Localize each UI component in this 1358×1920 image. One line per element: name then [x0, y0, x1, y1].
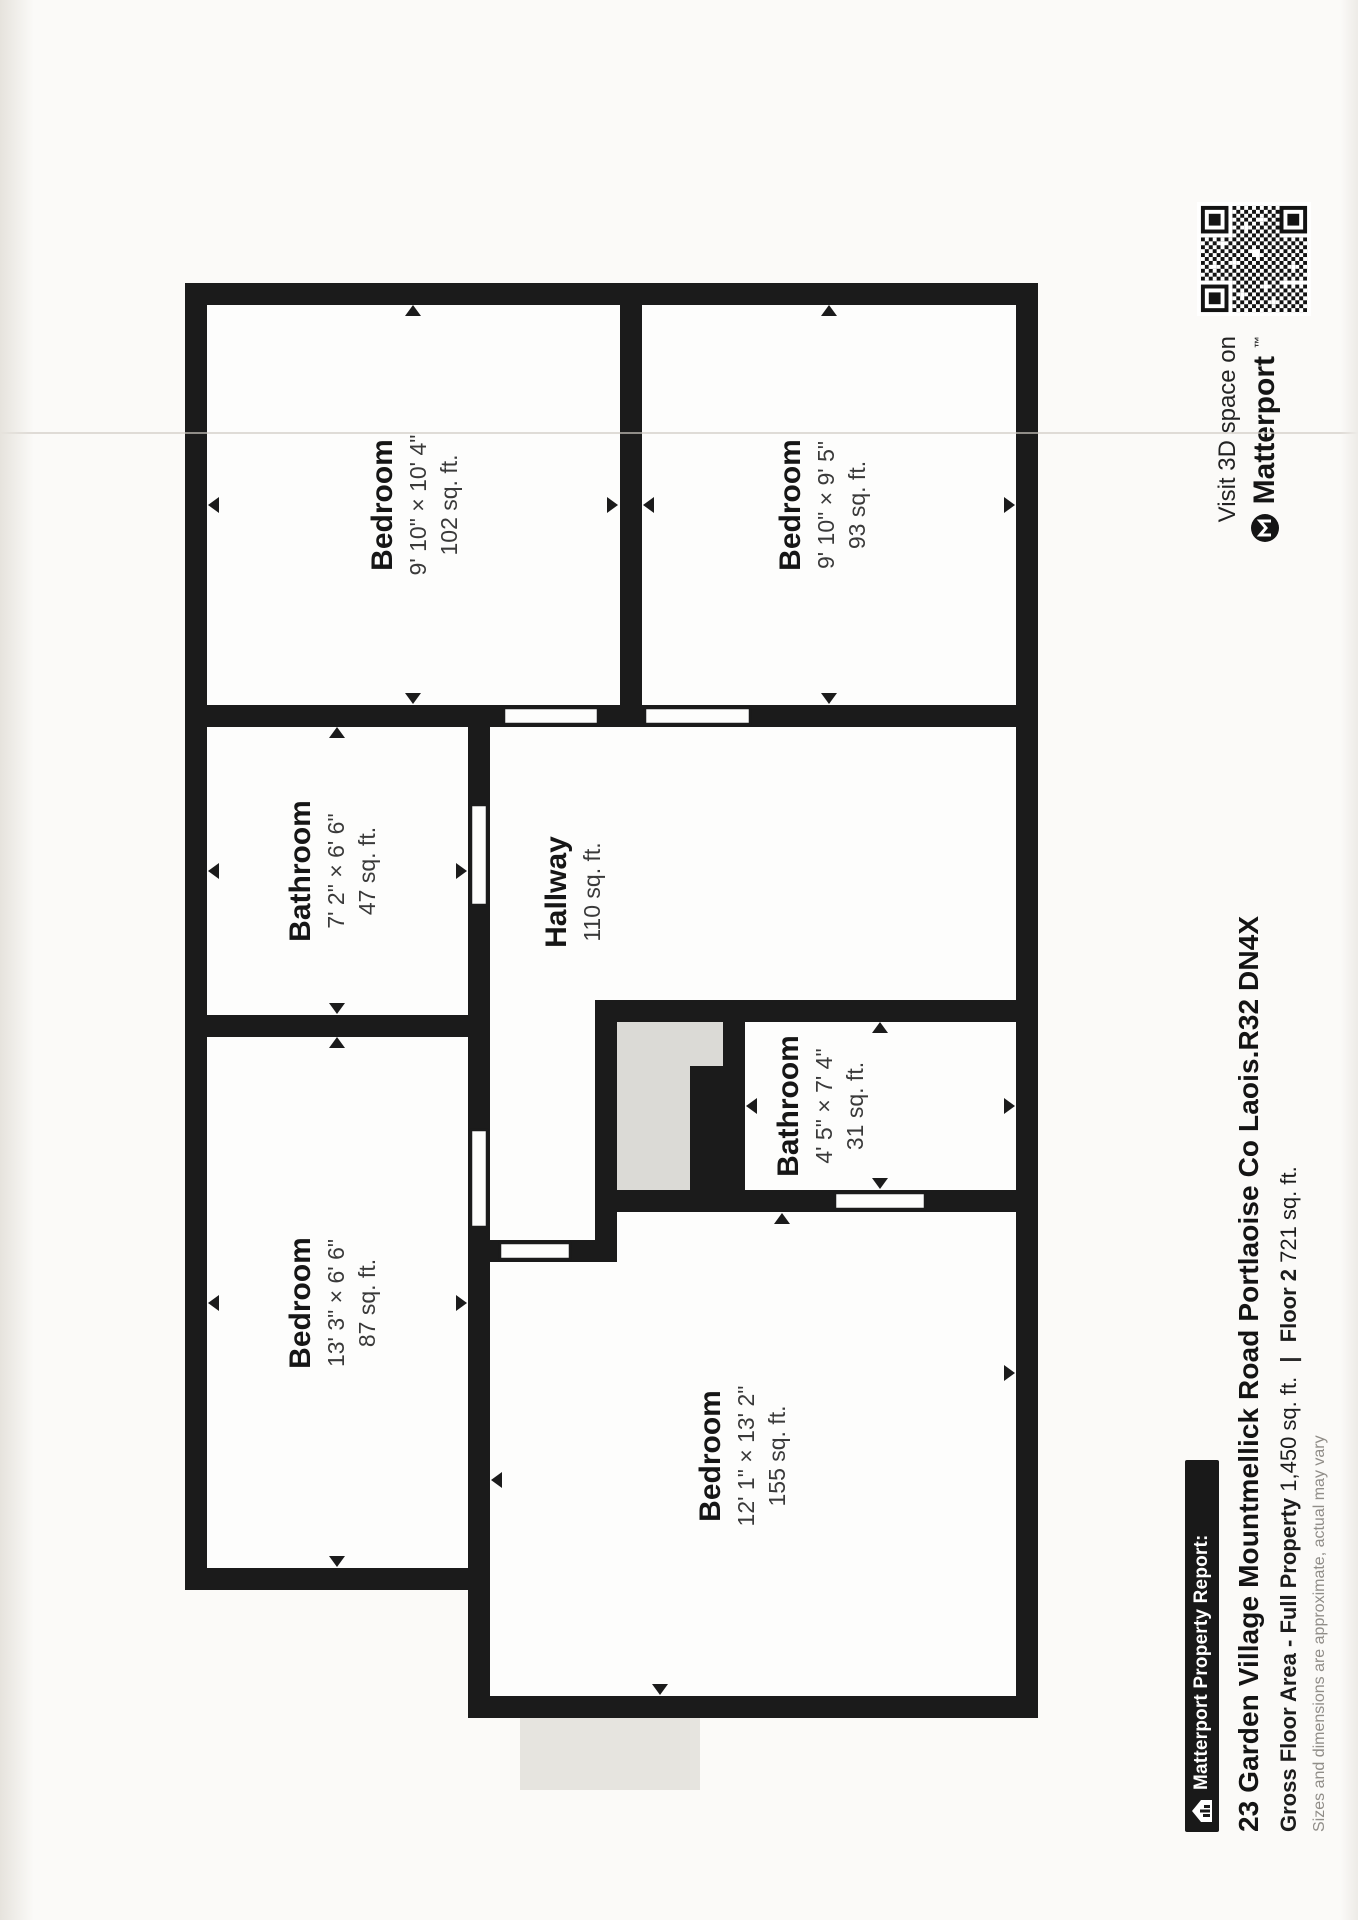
room-label-name: Bathroom [284, 800, 317, 942]
floor-label: Floor 2 [1276, 1269, 1301, 1342]
room-label-area: 31 sq. ft. [842, 1062, 868, 1150]
room-label-area: 102 sq. ft. [436, 454, 462, 555]
room-label-area: 87 sq. ft. [354, 1259, 380, 1347]
matterport-logo-icon [1249, 512, 1281, 544]
door-bathroom-1 [471, 805, 487, 905]
property-address: 23 Garden Village Mountmellick Road Port… [1233, 916, 1265, 1832]
brand-bar-label: Matterport Property Report: [1191, 1534, 1213, 1790]
room-label-name: Bedroom [694, 1390, 727, 1522]
floor-plan: Bedroom 9' 10" × 10' 4" 102 sq. ft. Bedr… [0, 0, 1358, 1920]
room-label-area: 155 sq. ft. [764, 1405, 790, 1506]
trademark-symbol: ™ [1252, 336, 1266, 348]
brand-bar: Matterport Property Report: [1185, 1460, 1219, 1832]
room-label-name: Bedroom [774, 439, 807, 571]
gross-area-value: 1,450 sq. ft. [1276, 1377, 1301, 1492]
qr-caption-line2: Matterport™ [1248, 336, 1282, 676]
room-label-name: Bedroom [284, 1237, 317, 1369]
room-label-dims: 13' 3" × 6' 6" [323, 1239, 349, 1367]
door-bedroom-2 [645, 708, 750, 724]
door-bedroom-4 [500, 1243, 570, 1259]
separator: | [1276, 1356, 1301, 1362]
door-bedroom-1 [504, 708, 598, 724]
qr-code [1197, 202, 1311, 316]
door-bathroom-2 [835, 1193, 925, 1209]
room-label-dims: 12' 1" × 13' 2" [733, 1386, 759, 1527]
matterport-home-icon [1191, 1799, 1213, 1823]
room-label-dims: 7' 2" × 6' 6" [323, 813, 349, 928]
report-footer: Matterport Property Report: 23 Garden Vi… [1185, 916, 1329, 1832]
qr-brand-text: Matterport [1248, 356, 1282, 504]
room-label-dims: 4' 5" × 7' 4" [811, 1048, 837, 1163]
floor-area-line: Gross Floor Area - Full Property 1,450 s… [1276, 916, 1302, 1832]
room-label-area: 47 sq. ft. [354, 827, 380, 915]
room-label-name: Bathroom [772, 1035, 805, 1177]
qr-caption: Visit 3D space on Matterport™ [1214, 336, 1282, 676]
disclaimer-text: Sizes and dimensions are approximate, ac… [1311, 916, 1329, 1832]
scanned-report-page: Bedroom 9' 10" × 10' 4" 102 sq. ft. Bedr… [0, 0, 1358, 1920]
qr-caption-line1: Visit 3D space on [1214, 336, 1242, 676]
floor-value: 721 sq. ft. [1276, 1166, 1301, 1263]
gross-area-label: Gross Floor Area - Full Property [1276, 1498, 1301, 1832]
room-label-area: 110 sq. ft. [579, 842, 605, 941]
door-bedroom-3 [471, 1130, 487, 1227]
scan-fold-line [0, 432, 1358, 434]
room-label-dims: 9' 10" × 9' 5" [813, 441, 839, 569]
room-label-area: 93 sq. ft. [844, 461, 870, 549]
room-label-dims: 9' 10" × 10' 4" [405, 435, 431, 576]
room-label-name: Hallway [540, 836, 573, 948]
room-label-name: Bedroom [366, 439, 399, 571]
porch-step [520, 1716, 700, 1790]
